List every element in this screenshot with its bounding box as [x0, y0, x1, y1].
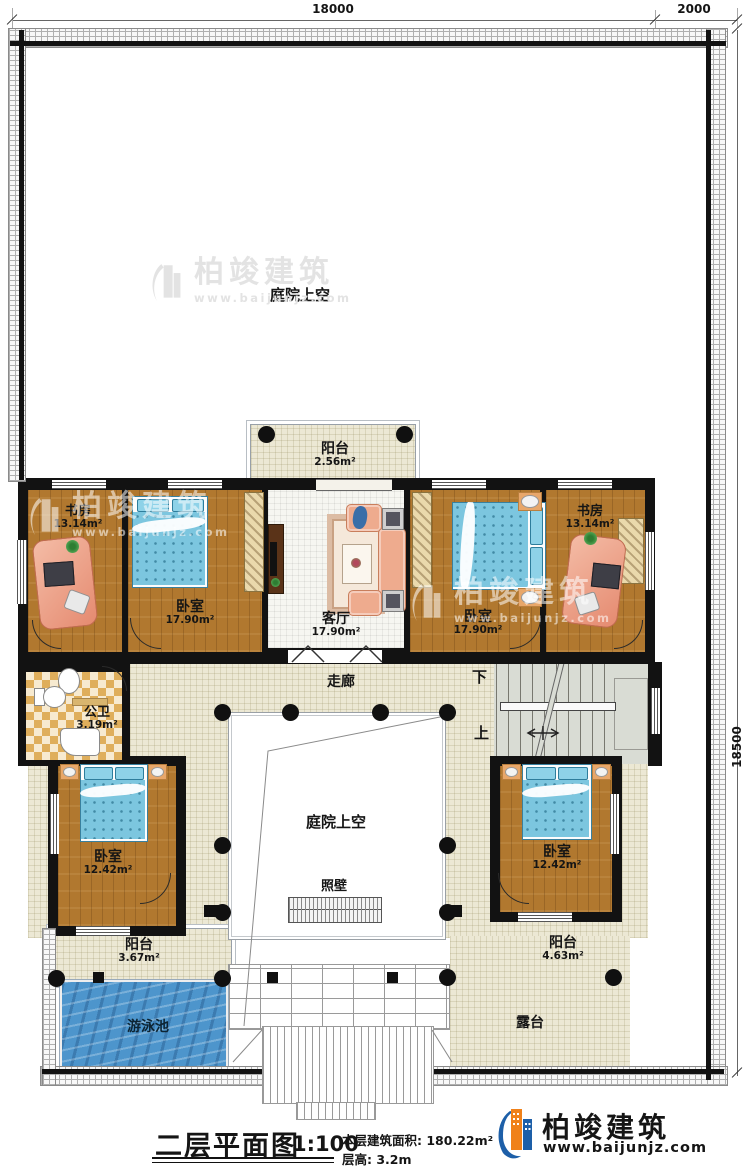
pillow — [172, 499, 204, 512]
site-wall-left-line — [19, 30, 24, 480]
watermark-logo-icon — [492, 383, 530, 429]
column — [48, 970, 65, 987]
paved-patio — [228, 964, 450, 1030]
title-underline — [152, 1157, 334, 1159]
site-wall-lower-left — [42, 928, 56, 1086]
label-bedroom-left: 卧室 17.90m² — [166, 600, 215, 627]
label-balcony-br: 阳台 4.63m² — [542, 936, 583, 963]
floor-area-line: 本层建筑面积: 180.22m² — [342, 1130, 493, 1149]
wall-stub — [204, 905, 220, 917]
label-screen-wall: 照壁 — [321, 880, 347, 894]
bedside-table — [592, 764, 611, 780]
title-underline-2 — [152, 1162, 334, 1163]
window — [558, 480, 612, 489]
label-courtyard-center: 庭院上空 — [306, 814, 366, 831]
side-table — [382, 590, 404, 612]
column — [214, 704, 231, 721]
entry-steps-lower — [296, 1102, 376, 1120]
label-terrace: 露台 — [516, 1016, 544, 1031]
floor-height-line: 层高: 3.2m — [342, 1149, 412, 1168]
tv — [270, 542, 277, 576]
screen-wall — [288, 897, 382, 923]
bed-bedroom-left — [132, 496, 208, 588]
shower-tray — [60, 728, 100, 756]
label-bath: 公卫 3.19m² — [76, 706, 117, 732]
site-wall-top-line — [10, 41, 726, 46]
window — [76, 926, 130, 936]
bedside-table — [148, 764, 167, 780]
bed-bedroom-right — [452, 502, 546, 590]
coffee-table — [342, 544, 372, 584]
watermark-logo-icon — [148, 259, 186, 305]
column-square — [93, 972, 104, 983]
bed-bedroom-br — [522, 764, 592, 840]
floor-height-value: 3.2m — [376, 1152, 411, 1167]
potted-plant — [66, 540, 79, 553]
wall-stub — [446, 905, 462, 917]
bed-bedroom-bl — [80, 764, 148, 842]
floor-area-value: 180.22m² — [426, 1133, 493, 1148]
dimension-line-top — [12, 20, 737, 21]
potted-plant — [584, 532, 597, 545]
entry-steps — [262, 1026, 434, 1104]
toilet-bowl — [43, 686, 66, 708]
window — [17, 540, 27, 604]
label-bedroom-br: 卧室 12.42m² — [533, 845, 582, 872]
column — [214, 837, 231, 854]
column — [372, 704, 389, 721]
label-balcony-top: 阳台 2.56m² — [314, 442, 355, 469]
column — [282, 704, 299, 721]
bedside-table — [502, 764, 521, 780]
dimension-right-side: 18500 — [730, 715, 744, 779]
window — [168, 480, 222, 489]
label-bedroom-right: 卧室 17.90m² — [454, 610, 503, 637]
computer-monitor — [43, 561, 75, 587]
label-living: 客厅 17.90m² — [312, 612, 361, 639]
living-door-opening — [288, 650, 382, 663]
column — [439, 969, 456, 986]
label-pool: 游泳池 — [127, 1020, 169, 1035]
dimension-top-main: 18000 — [283, 2, 383, 16]
label-stair-down: 下 — [472, 666, 487, 687]
wardrobe — [412, 492, 432, 588]
window — [610, 794, 619, 854]
column-square — [387, 972, 398, 983]
site-wall-right-line — [706, 30, 711, 1080]
bedside-table — [60, 764, 79, 780]
pillow — [530, 547, 543, 585]
column — [605, 969, 622, 986]
watermark: 柏竣建筑 www.baijunjz.com — [492, 382, 695, 429]
floor-plan: 18000 2000 18500 — [0, 0, 750, 1169]
pillow — [558, 767, 588, 780]
pillow — [526, 767, 556, 780]
pillow — [84, 767, 113, 780]
column — [396, 426, 413, 443]
window — [651, 688, 660, 734]
staircase — [494, 662, 654, 764]
wardrobe — [244, 492, 264, 592]
dimension-top-right: 2000 — [666, 2, 722, 16]
label-balcony-bl: 阳台 3.67m² — [118, 938, 159, 965]
pillow — [530, 507, 543, 545]
window — [52, 480, 106, 489]
window — [645, 532, 654, 590]
computer-monitor — [591, 563, 621, 590]
window — [432, 480, 486, 489]
company-logo-url: www.baijunjz.com — [543, 1140, 707, 1156]
pillow — [137, 499, 169, 512]
column-square — [267, 972, 278, 983]
pillow — [115, 767, 144, 780]
company-logo-icon — [494, 1104, 536, 1162]
bedside-table — [518, 588, 542, 607]
column — [439, 837, 456, 854]
watermark-text: 柏竣建筑 www.baijunjz.com — [538, 382, 695, 429]
balcony-door-opening — [316, 479, 392, 491]
window — [50, 794, 59, 854]
terrace-floor — [450, 936, 630, 1068]
column — [258, 426, 275, 443]
potted-plant — [271, 578, 280, 587]
label-bedroom-bl: 卧室 12.42m² — [84, 850, 133, 877]
floor-height-label: 层高: — [342, 1152, 372, 1167]
label-corridor: 走廊 — [327, 675, 355, 690]
dimension-line-right — [737, 30, 738, 1076]
side-table — [382, 508, 404, 530]
label-courtyard-top: 庭院上空 — [270, 287, 330, 304]
bedside-table — [518, 492, 542, 511]
column — [439, 704, 456, 721]
label-study-left: 书房 13.14m² — [54, 505, 103, 531]
stair-handrail — [500, 702, 616, 711]
label-study-right: 书房 13.14m² — [566, 505, 615, 531]
floor-area-label: 本层建筑面积: — [342, 1133, 422, 1148]
label-stair-up: 上 — [474, 722, 489, 743]
stair-landing — [614, 678, 648, 750]
column — [214, 970, 231, 987]
window — [518, 912, 572, 922]
